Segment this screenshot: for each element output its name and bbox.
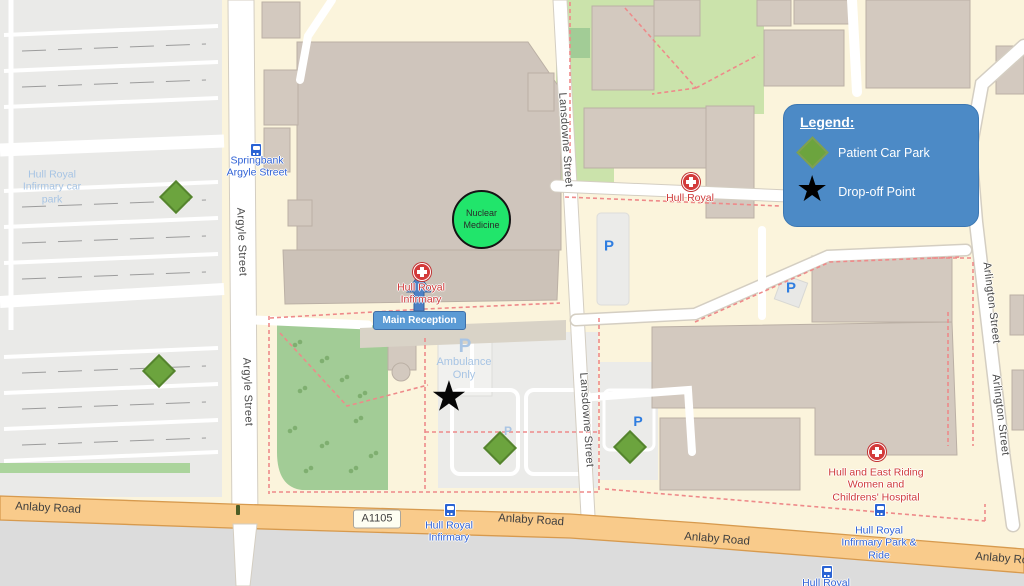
map-base-layer [0, 0, 1024, 586]
bus-stop-icon [821, 565, 833, 579]
hospital-cross-icon [413, 263, 431, 281]
legend-item-label: Patient Car Park [838, 146, 930, 160]
legend-title: Legend: [800, 114, 978, 130]
drop-off-point-marker: ★ [430, 375, 468, 417]
argyle-street-road [228, 0, 258, 524]
bus-stop-icon [250, 143, 262, 157]
patient-car-park-diamond-icon [796, 136, 829, 169]
legend-item-patient-car-park: Patient Car Park [798, 139, 978, 166]
drop-off-star-icon: ★ [796, 176, 828, 205]
hospital-park [277, 325, 388, 490]
anlaby-road [0, 496, 1024, 586]
parking-icon: P [459, 336, 472, 358]
map-canvas: Springbank Argyle Street Hull Royal Infi… [0, 0, 1024, 586]
hedge-strip [0, 463, 190, 473]
parking-icon: P [633, 413, 642, 429]
traffic-signal-icon [236, 505, 240, 515]
nuclear-medicine-marker: Nuclear Medicine [452, 190, 511, 249]
main-reception-callout: Main Reception [373, 311, 466, 330]
hospital-cross-icon [682, 173, 700, 191]
parking-icon: P [786, 280, 796, 297]
legend-item-drop-off-point: ★ Drop-off Point [798, 180, 978, 205]
car-park-west [0, 0, 224, 497]
legend-item-label: Drop-off Point [838, 185, 915, 199]
main-hospital-building [297, 42, 561, 250]
legend: Legend: Patient Car Park ★ Drop-off Poin… [783, 104, 979, 227]
bus-stop-icon [874, 503, 886, 517]
parking-icon: P [604, 238, 614, 255]
hospital-cross-icon [868, 443, 886, 461]
bus-stop-icon [444, 503, 456, 517]
